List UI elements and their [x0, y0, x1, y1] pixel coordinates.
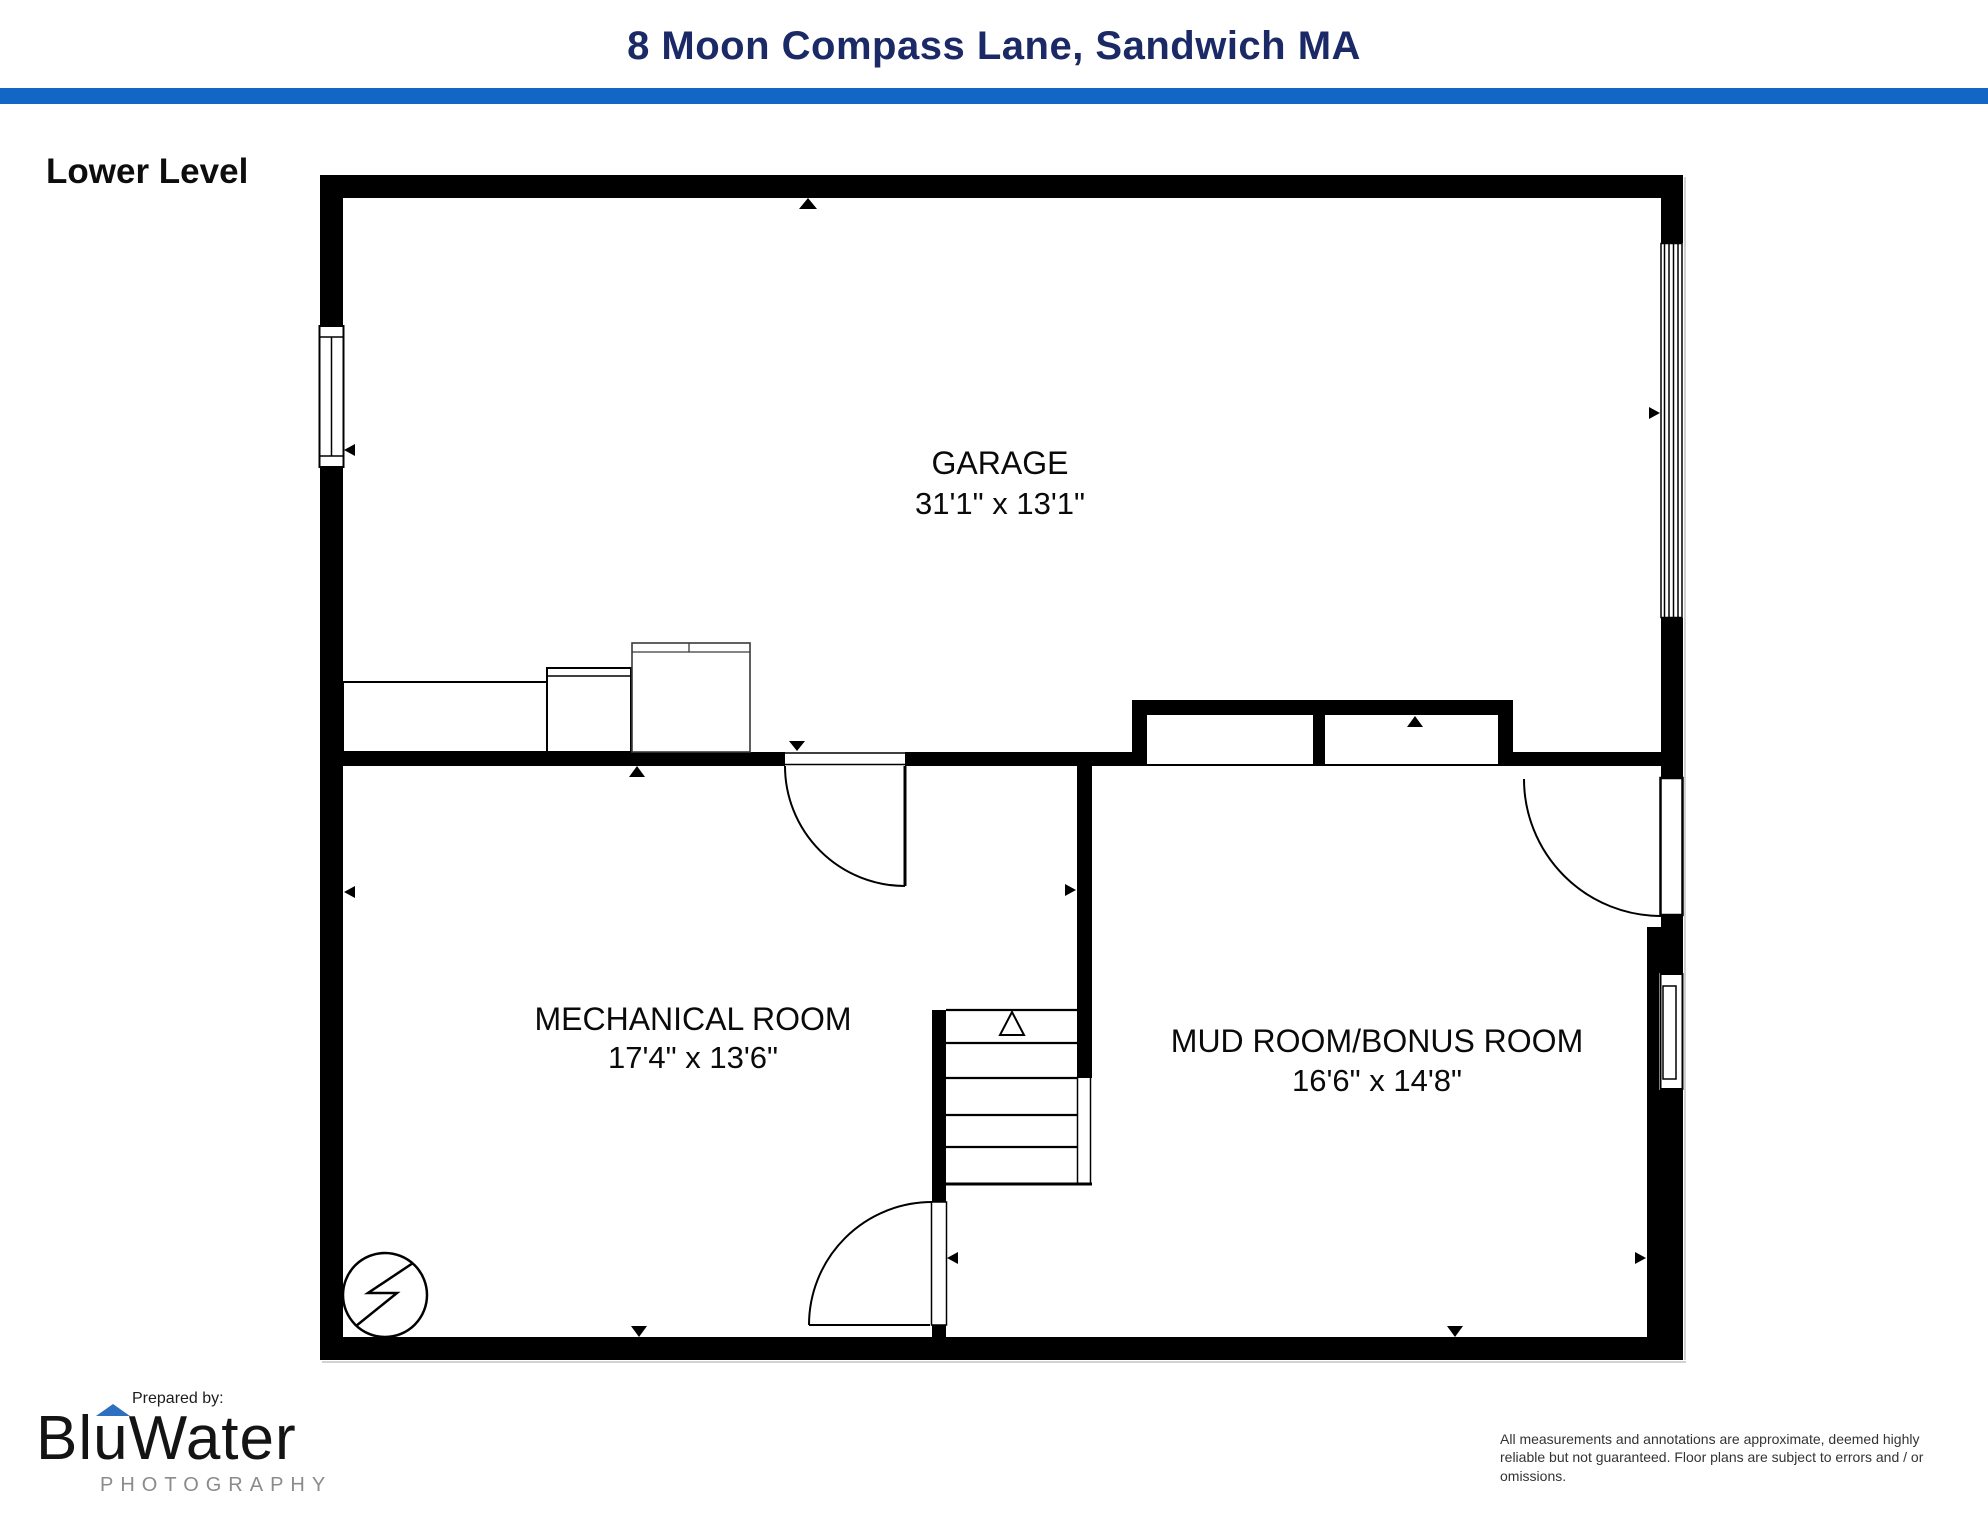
washer [547, 668, 631, 752]
stair-wall-lower [932, 1325, 946, 1337]
mud-room-dims: 16'6" x 14'8" [1292, 1063, 1462, 1098]
wall-mech-mud-divider [1077, 752, 1092, 1078]
wall-top [320, 175, 1683, 198]
marker-bump-window [1407, 716, 1423, 727]
left-wall-window [318, 325, 345, 468]
wall-mud-top-right [1513, 752, 1661, 766]
wall-garage-mech-left [343, 752, 785, 766]
appliances [343, 643, 750, 752]
bump-mullion [1313, 700, 1325, 766]
counter [343, 682, 547, 752]
door-garage-to-mechanical [785, 752, 905, 886]
logo-roof-icon [96, 1404, 130, 1416]
arrow-stairs-door [947, 1252, 958, 1264]
wall-markers [629, 198, 1463, 1337]
exterior-walls [320, 175, 1683, 1360]
logo-wordmark: BluWater [36, 1404, 297, 1473]
wall-right-upper-b [1661, 618, 1683, 778]
logo-word-water: Water [129, 1404, 297, 1473]
arrow-mud-right-wall [1635, 1252, 1646, 1264]
disclaimer-text: All measurements and annotations are app… [1500, 1430, 1948, 1485]
marker-garage-bottom [629, 766, 645, 777]
mud-room-label: MUD ROOM/BONUS ROOM [1171, 1023, 1583, 1059]
arrow-garage-door [1649, 407, 1660, 419]
floor-plan-drawing: GARAGE 31'1" x 13'1" MECHANICAL ROOM 17'… [0, 0, 1988, 1536]
arrow-left-window [344, 444, 355, 456]
wall-right-upper-c [1661, 915, 1683, 927]
door-under-stairs [809, 1202, 947, 1325]
mechanical-room-dims: 17'4" x 13'6" [608, 1040, 778, 1075]
garage-door [1660, 243, 1684, 618]
direction-arrows [344, 407, 1660, 1264]
door-mudroom-exterior [1524, 778, 1683, 916]
garage-dims: 31'1" x 13'1" [915, 486, 1085, 521]
marker-top-wall [799, 198, 817, 209]
marker-bottom-right [1447, 1326, 1463, 1337]
floorplan-page: 8 Moon Compass Lane, Sandwich MA Lower L… [0, 0, 1988, 1536]
bump-right-riser [1498, 700, 1513, 766]
wall-right-upper-a [1661, 175, 1683, 243]
wall-bottom [320, 1337, 1683, 1360]
right-wall-window [1659, 973, 1684, 1090]
arrow-left-mech [344, 886, 355, 898]
stairs-up-marker [1000, 1012, 1024, 1035]
marker-door-opening [789, 741, 805, 751]
stairs [946, 1010, 1092, 1184]
arrow-divider-wall [1065, 884, 1076, 896]
mechanical-room-label: MECHANICAL ROOM [534, 1001, 851, 1037]
logo-subtitle: PHOTOGRAPHY [100, 1474, 332, 1497]
wall-garage-mech-right [905, 752, 1077, 766]
electrical-panel-icon [343, 1253, 427, 1337]
stair-wall-upper [932, 1010, 946, 1202]
garage-label: GARAGE [932, 445, 1069, 481]
marker-bottom-left [631, 1326, 647, 1337]
bluwater-logo: BluWater PHOTOGRAPHY [36, 1408, 332, 1497]
refrigerator [632, 643, 750, 752]
wall-mud-top-left [1092, 752, 1132, 766]
